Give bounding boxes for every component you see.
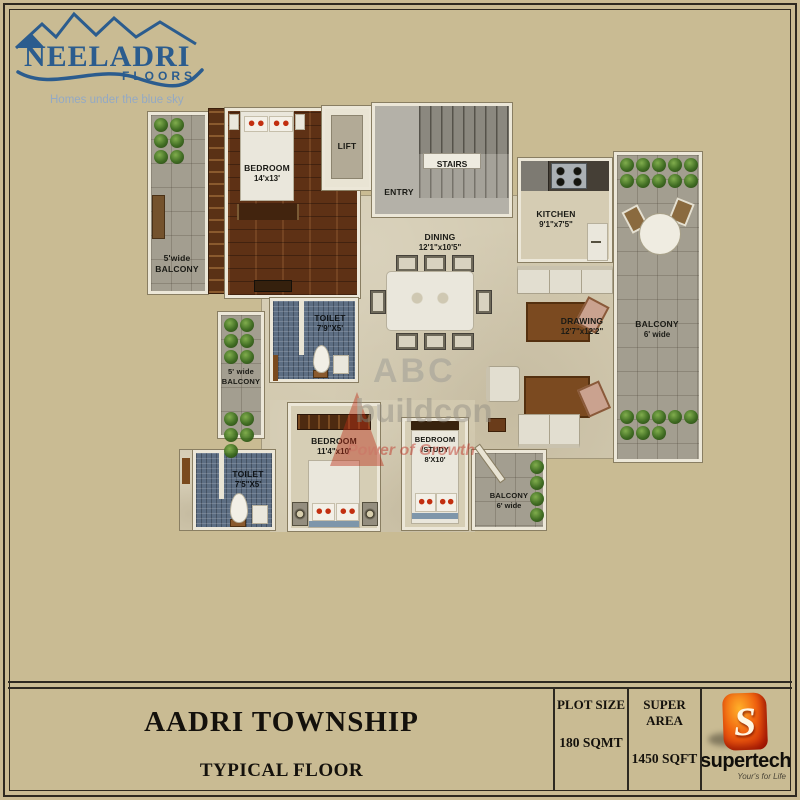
plant-icon bbox=[224, 412, 238, 426]
pillow bbox=[336, 503, 359, 521]
stairs-block: STAIRS ENTRY bbox=[372, 103, 512, 217]
round-table bbox=[639, 213, 681, 255]
dining-chair bbox=[452, 255, 474, 272]
footer-vline bbox=[627, 689, 629, 790]
bench bbox=[254, 280, 292, 292]
plant-icon bbox=[240, 428, 254, 442]
toilet-door bbox=[182, 458, 190, 484]
pillow bbox=[244, 116, 268, 132]
bedroom3: BEDROOM /STUDY 8'X10' bbox=[402, 418, 468, 530]
room-label: TOILET bbox=[224, 469, 272, 480]
fridge bbox=[587, 223, 608, 261]
tv-cabinet bbox=[488, 418, 506, 432]
room-label: 5' wide bbox=[221, 367, 261, 377]
room-dim: 7'9"X5' bbox=[305, 324, 355, 334]
plant-icon bbox=[170, 150, 184, 164]
floor-subtitle: TYPICAL FLOOR bbox=[10, 760, 553, 782]
plant-icon bbox=[652, 158, 666, 172]
room-dim: 11'4"x10' bbox=[299, 447, 369, 457]
room-dim: 14'x13' bbox=[242, 174, 292, 184]
plant-icon bbox=[224, 318, 238, 332]
plant-icon bbox=[170, 118, 184, 132]
bed-runner bbox=[412, 513, 458, 519]
kitchen: KITCHEN 9'1"x7'5" bbox=[518, 158, 612, 262]
plants-cluster bbox=[153, 117, 195, 165]
plant-icon bbox=[684, 410, 698, 424]
drawing-label: DRAWING 12'7"x12'2" bbox=[528, 316, 636, 337]
stairs-label-box: STAIRS bbox=[423, 153, 481, 169]
plants-cluster bbox=[619, 409, 699, 441]
rug bbox=[237, 204, 299, 220]
dining-chair bbox=[370, 290, 386, 314]
toilet1: TOILET 7'9"X5' bbox=[270, 298, 358, 382]
room-label: STAIRS bbox=[437, 159, 468, 169]
room-dim: 7'5"X5' bbox=[224, 480, 272, 490]
plant-icon bbox=[224, 350, 238, 364]
room-label: LIFT bbox=[325, 141, 369, 152]
footer-divider-top bbox=[8, 681, 792, 683]
room-label: BALCONY bbox=[483, 491, 535, 501]
plant-icon bbox=[684, 174, 698, 188]
plant-icon bbox=[636, 158, 650, 172]
balcony-mid-left: 5' wide BALCONY bbox=[218, 312, 264, 438]
dining-label: DINING 12'1"x10'5" bbox=[390, 232, 490, 253]
balcony-right: BALCONY 6' wide bbox=[614, 152, 702, 462]
floor-plan: 5'wide BALCONY BEDROOM 14'x13' LIFT STAI… bbox=[140, 100, 702, 565]
dining-table bbox=[386, 271, 474, 331]
plant-icon bbox=[684, 158, 698, 172]
plant-icon bbox=[530, 460, 544, 474]
plant-icon bbox=[224, 428, 238, 442]
toilet-cabinet bbox=[333, 355, 349, 374]
room-label: BALCONY bbox=[151, 264, 203, 275]
footer-vline bbox=[553, 689, 555, 790]
dining-chair bbox=[424, 333, 446, 350]
side-table bbox=[229, 114, 239, 130]
plant-icon bbox=[240, 412, 254, 426]
toilet-cabinet bbox=[252, 505, 268, 524]
plants-cluster bbox=[223, 411, 261, 459]
room-dim: 6' wide bbox=[483, 501, 535, 511]
side-speaker bbox=[362, 502, 378, 526]
wardrobe-strip bbox=[208, 108, 225, 294]
footer-vline bbox=[700, 689, 702, 790]
plot-size-label: PLOT SIZE bbox=[555, 697, 627, 713]
super-area-label: SUPER AREA bbox=[629, 697, 700, 729]
toilet1-label: TOILET 7'9"X5' bbox=[305, 313, 355, 334]
room-label: BEDROOM bbox=[299, 436, 369, 447]
side-speaker bbox=[292, 502, 308, 526]
room-dim: 8'X10' bbox=[411, 455, 459, 465]
supertech-s-icon: S bbox=[722, 692, 768, 751]
project-title: AADRI TOWNSHIP bbox=[10, 706, 553, 739]
brand-name: supertech bbox=[700, 750, 791, 773]
balcony-cabinet bbox=[152, 195, 165, 239]
balcony-top-left-label: 5'wide BALCONY bbox=[151, 253, 203, 275]
plant-icon bbox=[154, 150, 168, 164]
plant-icon bbox=[636, 426, 650, 440]
plant-icon bbox=[668, 174, 682, 188]
supertech-logo: S supertech Your's for Life bbox=[700, 689, 791, 790]
toilet-wc bbox=[230, 493, 248, 523]
plant-icon bbox=[620, 174, 634, 188]
dining-chair bbox=[452, 333, 474, 350]
fridge-handle bbox=[591, 241, 601, 243]
balcony-mid-left-label: 5' wide BALCONY bbox=[221, 367, 261, 387]
kitchen-sink-counter bbox=[521, 161, 549, 191]
sofa bbox=[518, 414, 580, 448]
lift-label: LIFT bbox=[325, 141, 369, 152]
dining-chair bbox=[396, 333, 418, 350]
toilet-door bbox=[273, 355, 278, 381]
balcony-bottom-label: BALCONY 6' wide bbox=[483, 491, 535, 511]
plant-icon bbox=[652, 410, 666, 424]
room-label: KITCHEN bbox=[523, 209, 589, 220]
room-dim: 9'1"x7'5" bbox=[523, 220, 589, 230]
sofa bbox=[517, 266, 613, 294]
plant-icon bbox=[652, 426, 666, 440]
toilet2-label: TOILET 7'5"X5' bbox=[224, 469, 272, 490]
balcony-bottom: BALCONY 6' wide bbox=[472, 450, 546, 530]
kitchen-label: KITCHEN 9'1"x7'5" bbox=[523, 209, 589, 230]
toilet2: TOILET 7'5"X5' bbox=[193, 450, 275, 530]
room-label: BALCONY bbox=[221, 377, 261, 387]
plant-icon bbox=[620, 158, 634, 172]
bedroom2: BEDROOM 11'4"x10' bbox=[288, 403, 380, 531]
bedroom3-label: BEDROOM /STUDY 8'X10' bbox=[411, 435, 459, 464]
super-area-column: SUPER AREA 1450 SQFT bbox=[629, 689, 700, 790]
room-dim: 12'1"x10'5" bbox=[390, 243, 490, 253]
brand-tagline: Your's for Life bbox=[737, 772, 786, 781]
lift: LIFT bbox=[322, 106, 372, 190]
room-label: DRAWING bbox=[528, 316, 636, 327]
plant-icon bbox=[636, 410, 650, 424]
plants-cluster bbox=[619, 157, 699, 189]
plants-cluster bbox=[223, 317, 261, 365]
plant-icon bbox=[240, 318, 254, 332]
pillow bbox=[436, 493, 457, 512]
room-label: ENTRY bbox=[379, 187, 419, 198]
plant-icon bbox=[636, 174, 650, 188]
wardrobe bbox=[297, 414, 371, 430]
brand-letter: S bbox=[722, 692, 768, 751]
plant-icon bbox=[224, 334, 238, 348]
plant-icon bbox=[620, 426, 634, 440]
plant-icon bbox=[154, 118, 168, 132]
stove bbox=[551, 163, 587, 189]
toilet2-lobby bbox=[180, 450, 193, 530]
bed bbox=[308, 460, 360, 528]
bedroom2-label: BEDROOM 11'4"x10' bbox=[299, 436, 369, 457]
plant-icon bbox=[154, 134, 168, 148]
plant-icon bbox=[224, 444, 238, 458]
toilet-wc bbox=[313, 345, 330, 373]
bedroom1-label: BEDROOM 14'x13' bbox=[242, 163, 292, 184]
plant-icon bbox=[530, 476, 544, 490]
pillow bbox=[269, 116, 293, 132]
room-label: BEDROOM bbox=[411, 435, 459, 445]
diagonal-wall bbox=[476, 445, 505, 482]
bed-runner bbox=[309, 521, 359, 527]
plant-icon bbox=[668, 158, 682, 172]
plant-icon bbox=[240, 334, 254, 348]
pillow bbox=[312, 503, 335, 521]
room-label: 5'wide bbox=[151, 253, 203, 264]
plot-size-value: 180 SQMT bbox=[555, 735, 627, 751]
stair-flight-upper bbox=[419, 106, 509, 154]
side-table bbox=[295, 114, 305, 130]
room-label: DINING bbox=[390, 232, 490, 243]
wardrobe bbox=[411, 421, 459, 430]
plant-icon bbox=[170, 134, 184, 148]
room-label: /STUDY bbox=[411, 445, 459, 455]
plant-icon bbox=[240, 350, 254, 364]
entry-label: ENTRY bbox=[379, 187, 419, 198]
dining-chair bbox=[476, 290, 492, 314]
super-area-value: 1450 SQFT bbox=[629, 751, 700, 767]
plant-icon bbox=[668, 410, 682, 424]
room-label: TOILET bbox=[305, 313, 355, 324]
plant-icon bbox=[652, 174, 666, 188]
plant-icon bbox=[620, 410, 634, 424]
room-label: BEDROOM bbox=[242, 163, 292, 174]
pillow bbox=[415, 493, 436, 512]
balcony-top-left: 5'wide BALCONY bbox=[148, 112, 208, 294]
dining-chair bbox=[424, 255, 446, 272]
footer-divider-top2 bbox=[8, 687, 792, 689]
neeladri-logo: NEELADRI FLOORS Homes under the blue sky bbox=[12, 6, 207, 108]
bed bbox=[240, 111, 294, 201]
dining-chair bbox=[396, 255, 418, 272]
room-dim: 12'7"x12'2" bbox=[528, 327, 636, 337]
toilet-partition bbox=[299, 301, 304, 355]
armchair bbox=[486, 366, 520, 402]
plot-size-column: PLOT SIZE 180 SQMT bbox=[555, 689, 627, 790]
